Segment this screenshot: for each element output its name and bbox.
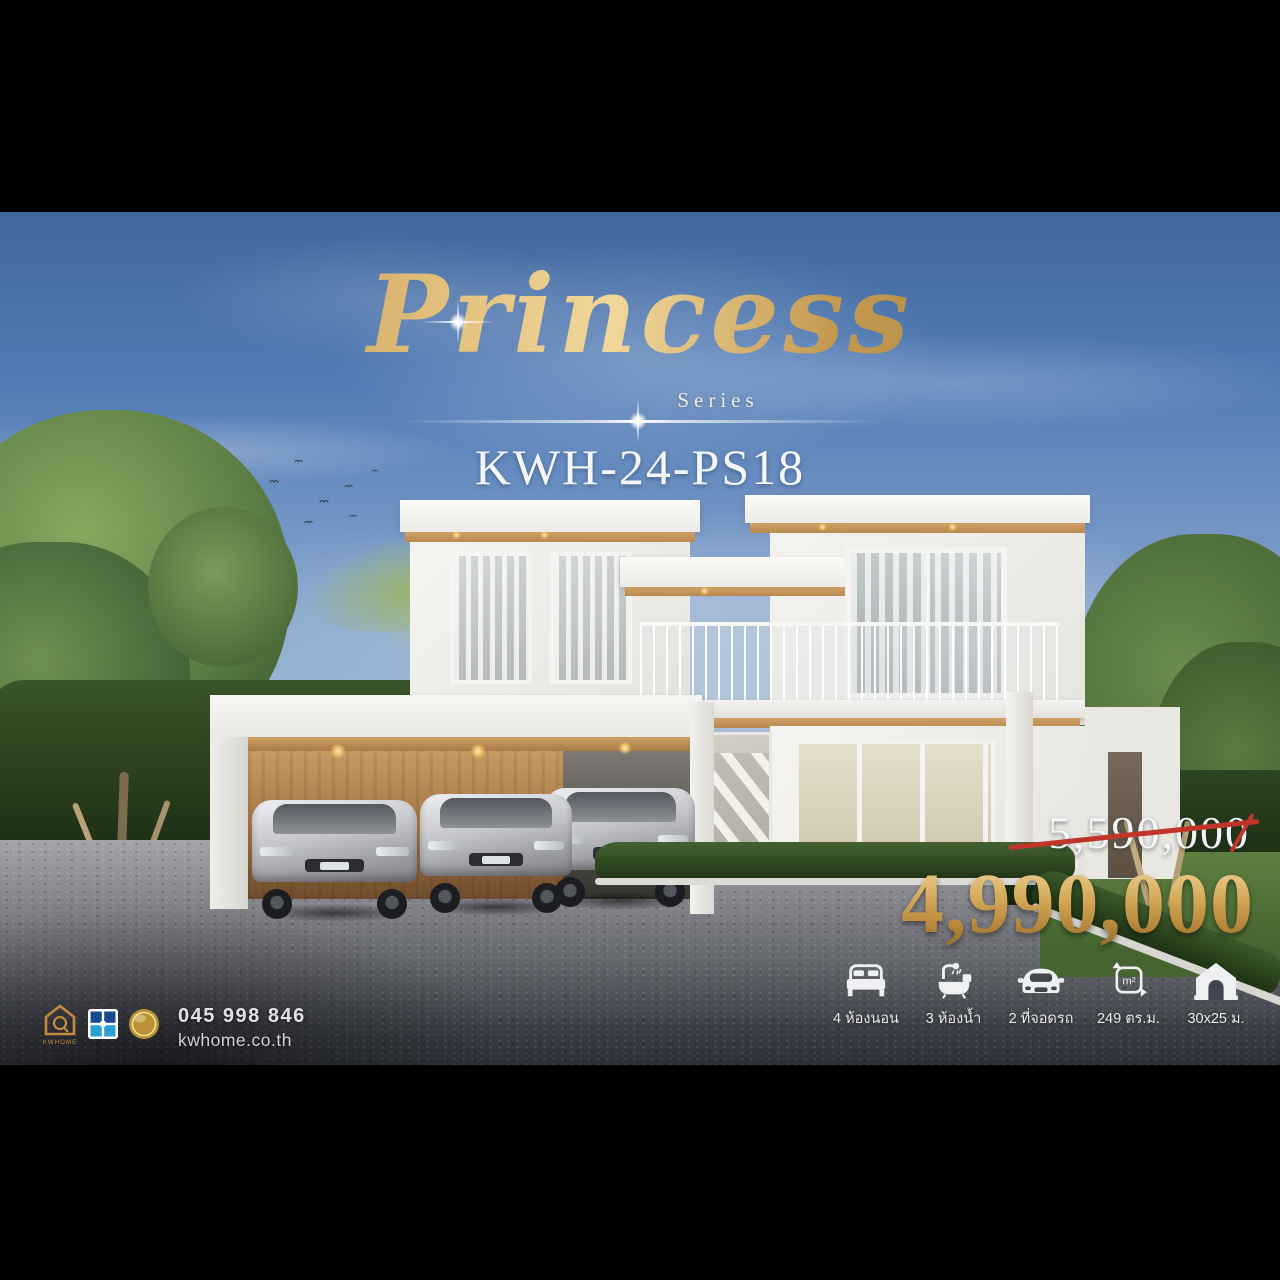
sparkle-core [449, 313, 467, 331]
kwhome-logo-icon: KWHOME [42, 1002, 78, 1046]
series-title: Princess [0, 256, 1280, 375]
soffit-downlight [948, 523, 957, 531]
car-headlight [376, 847, 409, 856]
spec-label: 3 ห้องน้ำ [926, 1007, 982, 1030]
car-windshield [440, 798, 552, 828]
car-body [420, 794, 572, 876]
carport-roof-slab [210, 695, 702, 737]
bath-icon [931, 960, 977, 1000]
area-icon: m² [1107, 960, 1151, 1000]
soffit-downlight [452, 531, 461, 539]
car-headlight [260, 847, 293, 856]
car-headlight [428, 841, 458, 850]
car-body [252, 800, 417, 882]
spec-label: 30x25 ม. [1187, 1007, 1244, 1030]
sparkle-core [629, 412, 647, 430]
logo-row: KWHOME [42, 1002, 160, 1046]
car-icon [1016, 960, 1066, 1000]
ceiling-light-glow [618, 742, 632, 754]
upstairs-window [450, 552, 532, 684]
gold-badge-icon [128, 1008, 160, 1040]
soffit-downlight [540, 531, 549, 539]
ceiling-light-glow [330, 744, 346, 758]
window-grid-logo-icon [87, 1008, 119, 1040]
spec-parking: 2 ที่จอดรถ [1001, 960, 1081, 1030]
poster-canvas: Princess Series KWH-24-PS18 5,590,000 4,… [0, 0, 1280, 1280]
car-wheel [430, 883, 460, 913]
spec-label: 2 ที่จอดรถ [1009, 1007, 1074, 1030]
contact-block: 045 998 846 kwhome.co.th [178, 1003, 306, 1052]
parked-car-mercedes [420, 778, 572, 913]
gold-soffit-left [405, 532, 695, 542]
spec-label: 4 ห้องนอน [833, 1007, 899, 1030]
soffit-downlight [700, 587, 709, 595]
spec-row: 4 ห้องนอน 3 ห้องน้ำ [826, 960, 1256, 1030]
series-subtitle: Series [648, 388, 788, 413]
car-license-plate [320, 862, 350, 870]
roof-fascia-right [745, 495, 1090, 523]
balcony-glass-railing [640, 622, 1060, 702]
car-windshield [273, 804, 395, 834]
gold-soffit-right [750, 523, 1085, 533]
left-tree-canopy-side [148, 507, 298, 667]
car-wheel [262, 889, 292, 919]
carport-left-wall [210, 737, 248, 909]
contact-website: kwhome.co.th [178, 1029, 306, 1052]
sparkle-icon [428, 292, 488, 352]
car-wheel [532, 883, 562, 913]
house-icon [1193, 960, 1239, 1000]
kwhome-logo-text: KWHOME [43, 1039, 78, 1046]
roof-fascia-step [620, 557, 850, 587]
car-wheel [377, 889, 407, 919]
gold-soffit-step [625, 587, 845, 596]
sparkle-icon [608, 392, 668, 450]
spec-bathrooms: 3 ห้องน้ำ [914, 960, 994, 1030]
soffit-downlight [818, 523, 827, 531]
spec-area: m² 249 ตร.ม. [1089, 960, 1169, 1030]
square-meter-symbol: m² [1122, 975, 1135, 987]
spec-bedrooms: 4 ห้องนอน [826, 960, 906, 1030]
sale-price: 4,990,000 [901, 860, 1254, 946]
car-windshield [565, 792, 676, 822]
contact-phone: 045 998 846 [178, 1003, 306, 1029]
car-headlight [534, 841, 564, 850]
parked-car-audi [252, 784, 417, 919]
roof-fascia-left [400, 500, 700, 532]
ceiling-light-glow [470, 744, 486, 758]
bed-icon [843, 960, 889, 1000]
house-render-photo: Princess Series KWH-24-PS18 5,590,000 4,… [0, 212, 1280, 1065]
spec-label: 249 ตร.ม. [1097, 1007, 1160, 1030]
spec-dimensions: 30x25 ม. [1176, 960, 1256, 1030]
car-license-plate [482, 856, 509, 864]
